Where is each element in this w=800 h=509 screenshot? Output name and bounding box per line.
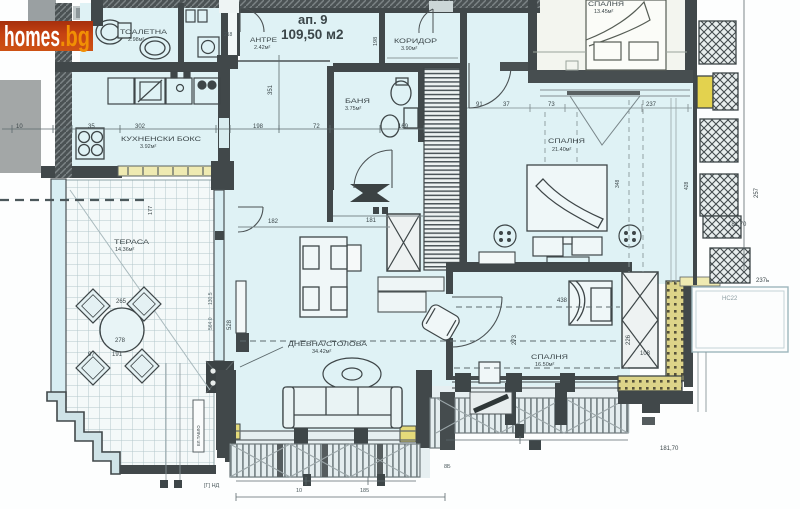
svg-text:homes: homes	[4, 21, 60, 53]
svg-text:226: 226	[626, 334, 632, 345]
svg-text:НС22: НС22	[722, 296, 738, 302]
svg-text:16.50м²: 16.50м²	[535, 362, 555, 368]
svg-text:СПАЛНЯ: СПАЛНЯ	[531, 354, 568, 361]
svg-text:КОРИДОР: КОРИДОР	[394, 38, 437, 45]
svg-text:182: 182	[268, 219, 279, 225]
svg-text:СПАЛНЯ: СПАЛНЯ	[548, 138, 585, 145]
svg-text:198: 198	[253, 124, 264, 130]
svg-text:91: 91	[476, 102, 483, 108]
svg-text:10: 10	[296, 488, 302, 494]
svg-text:237: 237	[646, 102, 657, 108]
svg-text:302: 302	[135, 124, 146, 130]
svg-text:3.92м²: 3.92м²	[140, 144, 156, 150]
svg-text:278: 278	[115, 338, 126, 344]
svg-text:3.90м²: 3.90м²	[401, 46, 417, 52]
svg-text:564.0: 564.0	[208, 317, 214, 330]
svg-text:109,50 м2: 109,50 м2	[281, 27, 344, 42]
svg-text:237ь: 237ь	[756, 278, 769, 284]
svg-text:2.42м²: 2.42м²	[254, 45, 270, 51]
svg-text:ап. 9: ап. 9	[298, 12, 328, 27]
svg-text:10: 10	[16, 124, 23, 130]
svg-text:.bg: .bg	[60, 21, 90, 53]
svg-text:[Г] НД: [Г] НД	[204, 483, 220, 489]
svg-text:438: 438	[557, 298, 568, 304]
svg-text:13.45м²: 13.45м²	[594, 9, 614, 15]
svg-text:73: 73	[548, 102, 555, 108]
svg-text:3.75м²: 3.75м²	[345, 106, 361, 112]
svg-text:ЕЛ.ТАБЛО: ЕЛ.ТАБЛО	[196, 425, 201, 446]
svg-text:177: 177	[148, 206, 154, 215]
svg-text:14.36м²: 14.36м²	[115, 247, 135, 253]
svg-text:8Б: 8Б	[444, 464, 451, 470]
svg-text:21.40м²: 21.40м²	[552, 147, 572, 153]
svg-text:257: 257	[754, 187, 760, 198]
svg-text:КУХНЕНСКИ БОКС: КУХНЕНСКИ БОКС	[121, 136, 201, 143]
svg-text:97: 97	[88, 352, 95, 358]
svg-text:130.5: 130.5	[208, 292, 214, 305]
svg-text:528: 528	[227, 319, 233, 330]
svg-text:181,70: 181,70	[728, 222, 747, 228]
svg-text:181: 181	[366, 218, 377, 224]
svg-text:198: 198	[373, 37, 379, 46]
svg-text:34.42м²: 34.42м²	[312, 349, 332, 355]
svg-text:ТОАЛЕТНА: ТОАЛЕТНА	[120, 29, 168, 36]
svg-text:191: 191	[112, 352, 123, 358]
svg-text:72: 72	[313, 124, 320, 130]
svg-text:БАНЯ: БАНЯ	[345, 98, 370, 105]
svg-text:ТЕРАСА: ТЕРАСА	[114, 239, 150, 246]
svg-text:169: 169	[398, 124, 409, 130]
svg-text:428: 428	[684, 181, 690, 190]
svg-text:348: 348	[615, 179, 621, 188]
svg-text:351: 351	[268, 84, 274, 95]
svg-text:218: 218	[224, 32, 233, 38]
svg-text:СПАЛНЯ: СПАЛНЯ	[588, 1, 624, 8]
svg-text:2.98м²: 2.98м²	[128, 37, 144, 43]
svg-text:108: 108	[640, 351, 651, 357]
svg-text:185: 185	[360, 488, 369, 494]
svg-text:265: 265	[116, 299, 127, 305]
svg-text:35: 35	[88, 124, 95, 130]
svg-text:181,70: 181,70	[660, 446, 679, 452]
svg-text:37: 37	[503, 102, 510, 108]
svg-text:АНТРЕ: АНТРЕ	[250, 37, 278, 44]
svg-text:ДНЕВНА/СТОЛОВА: ДНЕВНА/СТОЛОВА	[288, 341, 368, 348]
svg-text:273: 273	[512, 334, 518, 345]
